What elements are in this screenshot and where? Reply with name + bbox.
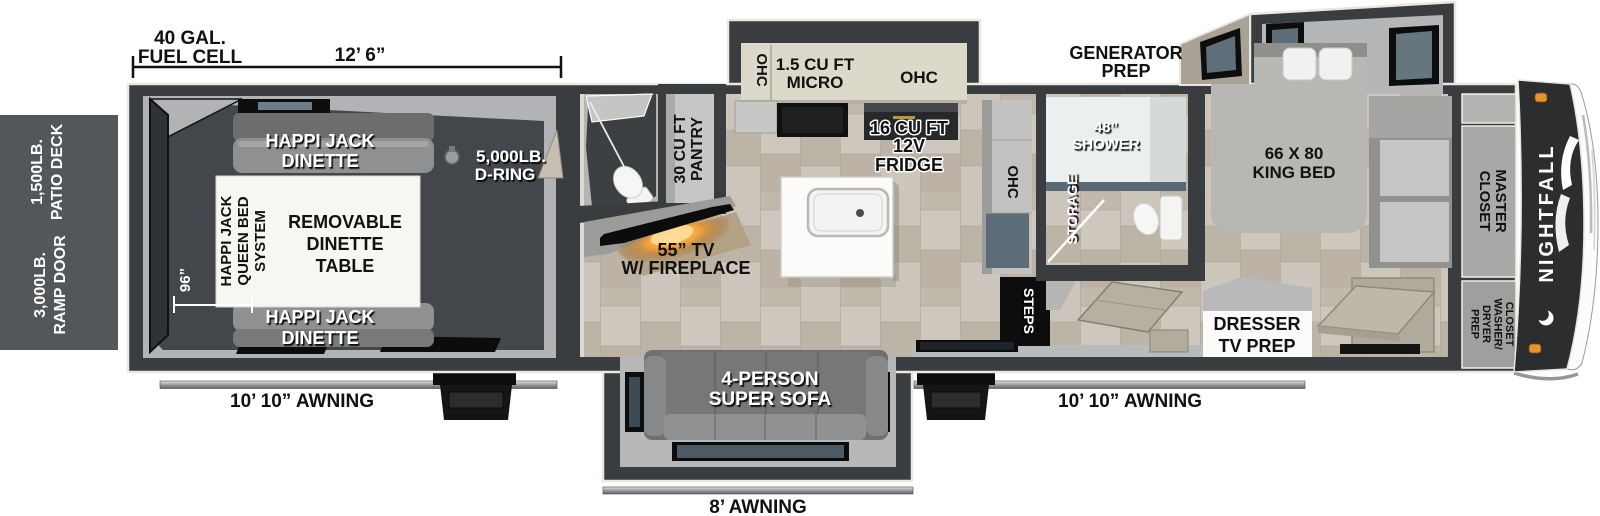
svg-text:1,500LB.: 1,500LB.	[29, 139, 46, 205]
svg-text:96”: 96”	[177, 268, 194, 292]
svg-text:HAPPI JACK: HAPPI JACK	[265, 307, 374, 327]
svg-text:HAPPI JACK: HAPPI JACK	[218, 195, 235, 286]
svg-text:OHC: OHC	[1004, 165, 1021, 199]
svg-text:STEPS: STEPS	[1021, 288, 1037, 334]
svg-text:KING BED: KING BED	[1252, 163, 1335, 182]
svg-text:DINETTE: DINETTE	[281, 151, 358, 171]
svg-text:PREP: PREP	[1101, 61, 1150, 81]
svg-text:MASTER: MASTER	[1492, 169, 1509, 233]
svg-text:PATIO DECK: PATIO DECK	[49, 123, 66, 220]
svg-text:OHC: OHC	[753, 53, 770, 87]
svg-text:SHOWER: SHOWER	[1072, 136, 1140, 153]
svg-text:OHC: OHC	[900, 68, 938, 87]
svg-text:DRESSER: DRESSER	[1213, 314, 1300, 334]
svg-text:PREP: PREP	[1469, 309, 1481, 339]
svg-text:W/ FIREPLACE: W/ FIREPLACE	[622, 258, 751, 278]
svg-text:DRYER: DRYER	[1480, 305, 1492, 343]
svg-text:MICRO: MICRO	[787, 73, 844, 92]
svg-text:D-RING: D-RING	[475, 165, 535, 184]
svg-text:DINETTE: DINETTE	[306, 234, 383, 254]
svg-text:30 CU FT: 30 CU FT	[672, 114, 689, 184]
svg-text:CLOSET: CLOSET	[1503, 302, 1515, 347]
svg-text:16 CU FT: 16 CU FT	[870, 118, 948, 138]
svg-text:PANTRY: PANTRY	[689, 117, 706, 181]
svg-text:3,000LB.: 3,000LB.	[32, 252, 49, 318]
svg-text:TV PREP: TV PREP	[1218, 336, 1295, 356]
svg-text:1.5 CU FT: 1.5 CU FT	[776, 55, 855, 74]
svg-text:TABLE: TABLE	[316, 256, 375, 276]
svg-text:48”: 48”	[1094, 119, 1118, 136]
svg-text:FUEL CELL: FUEL CELL	[138, 47, 243, 68]
svg-text:CLOSET: CLOSET	[1476, 171, 1493, 232]
svg-text:55” TV: 55” TV	[657, 240, 714, 260]
svg-text:RAMP DOOR: RAMP DOOR	[52, 235, 69, 335]
svg-text:REMOVABLE: REMOVABLE	[288, 212, 402, 232]
svg-text:FRIDGE: FRIDGE	[875, 155, 943, 175]
svg-text:NIGHTFALL: NIGHTFALL	[1536, 143, 1558, 282]
svg-text:HAPPI JACK: HAPPI JACK	[265, 131, 374, 151]
svg-text:SYSTEM: SYSTEM	[252, 210, 269, 272]
svg-text:WASHER/: WASHER/	[1492, 298, 1504, 349]
svg-text:10’ 10” AWNING: 10’ 10” AWNING	[230, 391, 374, 412]
svg-text:DINETTE: DINETTE	[281, 328, 358, 348]
svg-text:4-PERSON: 4-PERSON	[721, 369, 818, 390]
svg-text:GENERATOR: GENERATOR	[1069, 43, 1182, 63]
svg-text:8’ AWNING: 8’ AWNING	[709, 497, 806, 516]
svg-text:QUEEN BED: QUEEN BED	[235, 196, 252, 285]
svg-text:10’ 10” AWNING: 10’ 10” AWNING	[1058, 391, 1202, 412]
svg-text:12V: 12V	[893, 136, 925, 156]
svg-text:SUPER SOFA: SUPER SOFA	[709, 389, 832, 410]
svg-text:40 GAL.: 40 GAL.	[154, 28, 226, 49]
svg-text:12’ 6”: 12’ 6”	[335, 45, 386, 66]
svg-text:5,000LB.: 5,000LB.	[476, 147, 546, 166]
svg-text:66 X 80: 66 X 80	[1265, 144, 1324, 163]
